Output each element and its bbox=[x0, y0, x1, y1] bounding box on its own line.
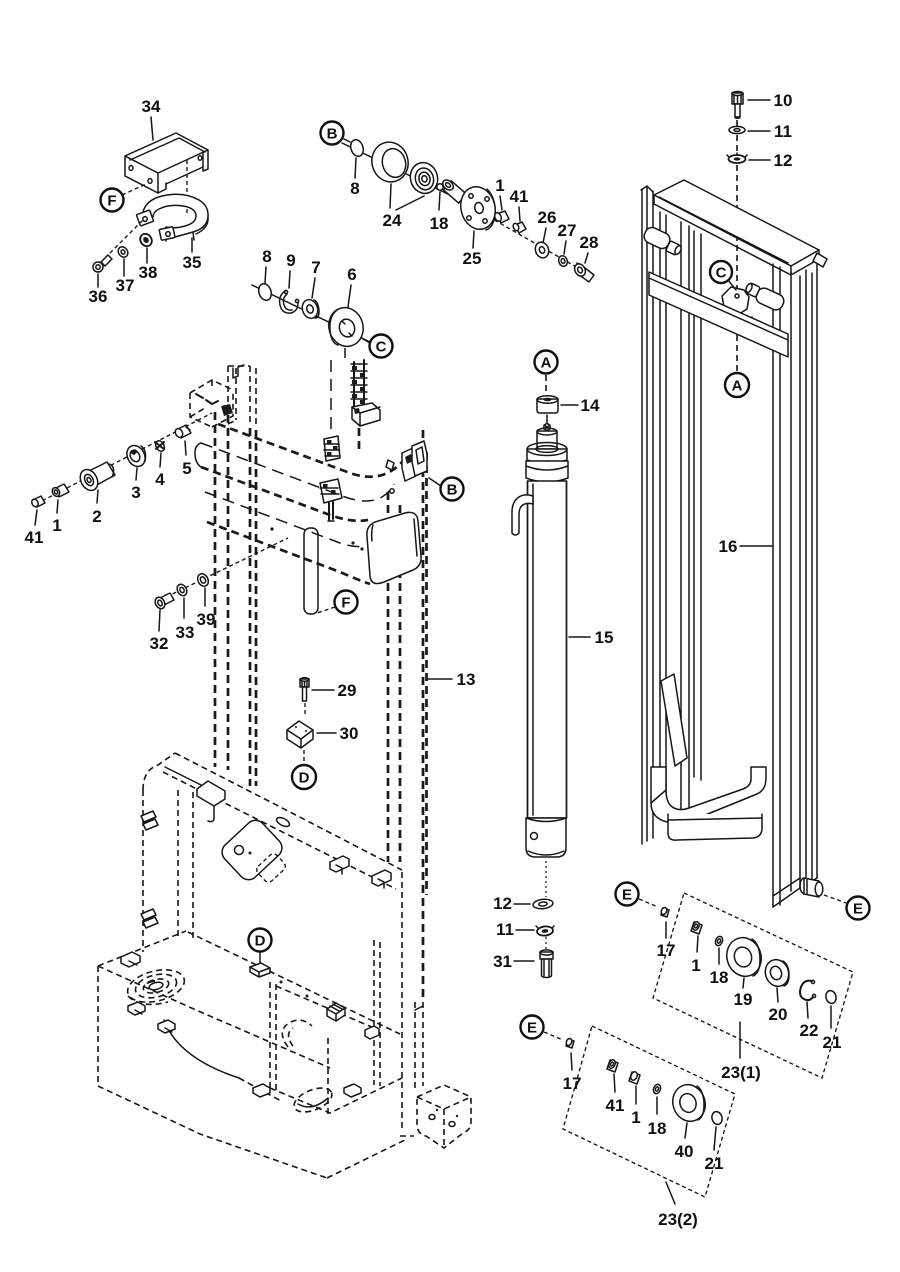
svg-text:1: 1 bbox=[691, 956, 700, 975]
svg-text:9: 9 bbox=[286, 251, 295, 270]
svg-text:C: C bbox=[716, 265, 727, 282]
svg-text:30: 30 bbox=[340, 724, 359, 743]
svg-text:8: 8 bbox=[350, 179, 359, 198]
svg-text:23(2): 23(2) bbox=[658, 1210, 698, 1229]
svg-text:4: 4 bbox=[155, 470, 165, 489]
svg-text:31: 31 bbox=[493, 952, 512, 971]
svg-text:29: 29 bbox=[338, 681, 357, 700]
svg-text:D: D bbox=[255, 933, 266, 950]
svg-text:6: 6 bbox=[347, 265, 356, 284]
svg-text:7: 7 bbox=[311, 258, 320, 277]
svg-text:23(1): 23(1) bbox=[721, 1063, 761, 1082]
svg-text:E: E bbox=[853, 901, 863, 918]
svg-text:A: A bbox=[541, 355, 552, 372]
svg-text:5: 5 bbox=[182, 459, 191, 478]
svg-text:C: C bbox=[376, 339, 387, 356]
svg-text:36: 36 bbox=[89, 287, 108, 306]
svg-text:18: 18 bbox=[430, 214, 449, 233]
svg-text:F: F bbox=[107, 193, 116, 210]
svg-text:34: 34 bbox=[142, 97, 161, 116]
svg-text:B: B bbox=[447, 482, 458, 499]
svg-text:40: 40 bbox=[675, 1142, 694, 1161]
svg-text:21: 21 bbox=[705, 1154, 724, 1173]
svg-text:41: 41 bbox=[510, 187, 529, 206]
svg-text:18: 18 bbox=[648, 1119, 667, 1138]
svg-text:39: 39 bbox=[197, 610, 216, 629]
svg-text:14: 14 bbox=[581, 396, 600, 415]
svg-text:1: 1 bbox=[52, 516, 61, 535]
svg-text:8: 8 bbox=[262, 247, 271, 266]
svg-text:37: 37 bbox=[116, 276, 135, 295]
svg-text:11: 11 bbox=[496, 920, 514, 939]
svg-text:28: 28 bbox=[580, 233, 599, 252]
svg-text:1: 1 bbox=[495, 176, 504, 195]
svg-text:18: 18 bbox=[710, 968, 729, 987]
svg-text:24: 24 bbox=[383, 211, 402, 230]
svg-text:E: E bbox=[622, 887, 632, 904]
svg-text:B: B bbox=[327, 126, 338, 143]
svg-text:D: D bbox=[299, 770, 310, 787]
svg-text:19: 19 bbox=[734, 990, 753, 1009]
svg-text:26: 26 bbox=[538, 208, 557, 227]
svg-text:22: 22 bbox=[800, 1021, 819, 1040]
svg-text:13: 13 bbox=[457, 670, 476, 689]
svg-text:35: 35 bbox=[183, 253, 202, 272]
svg-text:32: 32 bbox=[150, 634, 169, 653]
svg-text:A: A bbox=[732, 378, 743, 395]
svg-text:33: 33 bbox=[176, 623, 195, 642]
svg-text:12: 12 bbox=[774, 151, 793, 170]
svg-text:E: E bbox=[527, 1020, 537, 1037]
svg-text:2: 2 bbox=[92, 507, 101, 526]
svg-text:11: 11 bbox=[774, 122, 792, 141]
svg-text:F: F bbox=[341, 595, 350, 612]
svg-text:3: 3 bbox=[131, 483, 140, 502]
svg-text:27: 27 bbox=[558, 221, 577, 240]
svg-text:17: 17 bbox=[563, 1074, 582, 1093]
svg-text:10: 10 bbox=[774, 91, 793, 110]
svg-text:1: 1 bbox=[631, 1108, 640, 1127]
svg-text:38: 38 bbox=[139, 263, 158, 282]
svg-text:41: 41 bbox=[606, 1096, 625, 1115]
svg-text:16: 16 bbox=[719, 537, 738, 556]
svg-text:17: 17 bbox=[657, 941, 676, 960]
svg-text:12: 12 bbox=[493, 894, 512, 913]
svg-text:20: 20 bbox=[769, 1005, 788, 1024]
svg-text:25: 25 bbox=[463, 249, 482, 268]
svg-text:21: 21 bbox=[823, 1033, 842, 1052]
svg-text:41: 41 bbox=[25, 528, 44, 547]
svg-text:15: 15 bbox=[595, 628, 614, 647]
